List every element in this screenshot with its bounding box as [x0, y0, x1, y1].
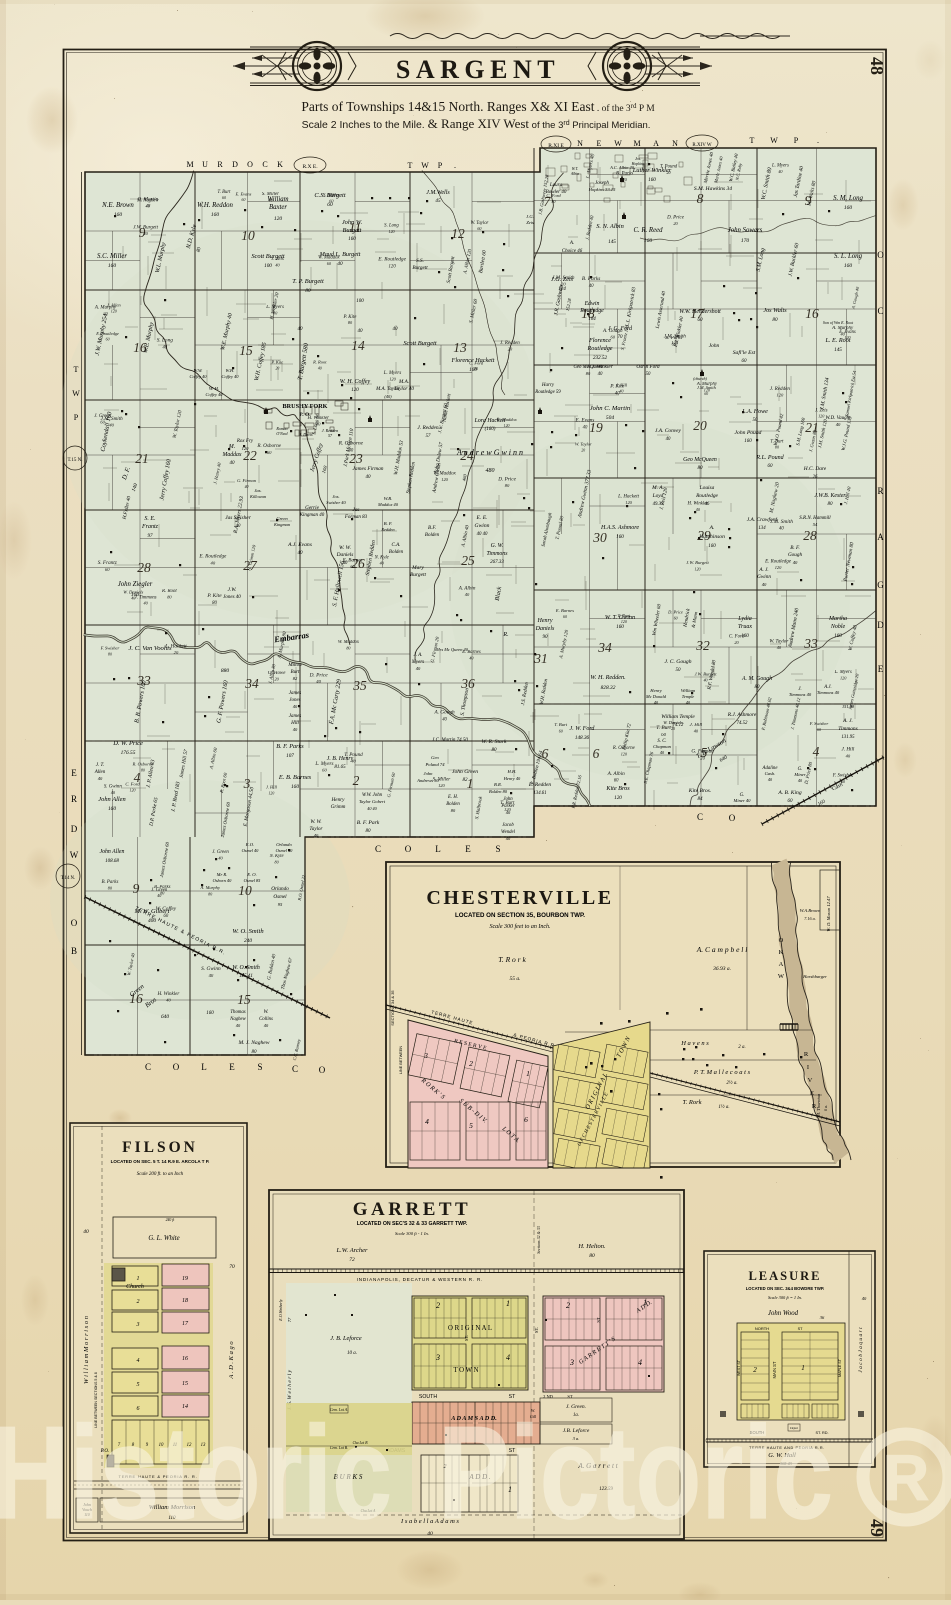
svg-text:60: 60	[817, 728, 821, 732]
svg-text:NORTH: NORTH	[755, 1326, 769, 1331]
svg-text:D. W. Price: D. W. Price	[112, 740, 143, 747]
svg-text:A. J.: A. J.	[758, 567, 768, 573]
svg-text:W.A.Brown: W.A.Brown	[800, 908, 821, 913]
svg-text:267.33: 267.33	[490, 560, 504, 565]
svg-text:80: 80	[772, 317, 778, 323]
svg-text:V: V	[808, 1077, 813, 1084]
svg-text:55 a.: 55 a.	[510, 976, 521, 982]
svg-text:S. Gwinn: S. Gwinn	[201, 966, 221, 972]
svg-text:W. Taylor: W. Taylor	[769, 640, 788, 645]
svg-text:20: 20	[700, 756, 705, 761]
svg-text:J.W. Burgett: J.W. Burgett	[695, 672, 718, 677]
svg-text:60: 60	[768, 464, 774, 469]
svg-text:A.: A.	[709, 525, 715, 531]
svg-text:19: 19	[182, 1276, 188, 1282]
svg-text:120: 120	[388, 229, 395, 234]
svg-text:160: 160	[834, 633, 842, 639]
svg-text:J. T.: J. T.	[96, 763, 105, 768]
svg-text:Miner 40: Miner 40	[733, 798, 752, 803]
svg-text:Osmel 40: Osmel 40	[276, 848, 294, 853]
svg-text:Laura: Laura	[549, 183, 563, 188]
svg-text:Geo: Geo	[431, 755, 439, 760]
svg-text:120: 120	[269, 792, 275, 796]
svg-text:3: 3	[435, 1353, 440, 1362]
svg-text:Scale 200 ft. to an Inch: Scale 200 ft. to an Inch	[137, 1172, 184, 1177]
svg-text:K: K	[277, 160, 283, 169]
svg-text:B.F.: B.F.	[428, 526, 436, 531]
svg-text:A. B. King: A. B. King	[777, 790, 802, 796]
svg-text:40 40: 40 40	[367, 806, 377, 811]
svg-text:Kingman 40: Kingman 40	[299, 513, 325, 518]
svg-text:James Firman: James Firman	[353, 466, 384, 472]
svg-text:S. Miller: S. Miller	[433, 776, 451, 782]
svg-text:John: John	[424, 771, 434, 776]
svg-text:J.M. Smith: J.M. Smith	[552, 275, 575, 281]
svg-text:ST: ST	[798, 1327, 804, 1331]
svg-text:5: 5	[469, 1121, 473, 1130]
svg-text:10 a.: 10 a.	[347, 1351, 357, 1356]
svg-text:MAIN ST: MAIN ST	[772, 1361, 777, 1378]
svg-text:160: 160	[644, 238, 653, 244]
svg-text:2: 2	[353, 773, 360, 788]
svg-text:W. Taylor: W. Taylor	[575, 442, 592, 447]
svg-text:80: 80	[505, 483, 510, 488]
svg-text:J. Hill: J. Hill	[616, 382, 628, 387]
svg-text:C: C	[877, 306, 883, 316]
svg-text:T: T	[750, 136, 755, 145]
svg-text:Jos.: Jos.	[635, 157, 641, 161]
svg-text:Truax: Truax	[738, 624, 752, 630]
svg-text:40: 40	[349, 448, 354, 453]
svg-text:97: 97	[148, 534, 154, 539]
svg-text:T. Burt: T. Burt	[500, 800, 515, 806]
svg-text:Taylor: Taylor	[310, 827, 323, 832]
svg-text:J. W. Ford: J. W. Ford	[570, 726, 596, 732]
svg-text:W. D. Mason 12.47: W. D. Mason 12.47	[826, 896, 831, 932]
svg-text:120: 120	[504, 424, 510, 428]
svg-text:R. Osborne: R. Osborne	[338, 440, 364, 446]
svg-text:49: 49	[867, 1519, 887, 1537]
svg-text:Daniels: Daniels	[336, 552, 354, 558]
svg-text:60: 60	[742, 359, 748, 364]
svg-text:A. J.: A. J.	[842, 718, 853, 724]
svg-text:R: R	[71, 794, 77, 804]
svg-text:160: 160	[708, 544, 716, 549]
svg-text:6: 6	[593, 746, 600, 761]
svg-text:40: 40	[245, 485, 249, 489]
svg-text:R: R	[804, 1051, 809, 1058]
svg-text:Allen: Allen	[94, 770, 106, 775]
svg-text:D: D	[232, 160, 238, 169]
svg-text:50: 50	[646, 372, 651, 377]
svg-text:Gerrie: Gerrie	[305, 505, 320, 511]
svg-text:40: 40	[862, 1296, 867, 1301]
svg-text:100: 100	[356, 299, 364, 304]
svg-text:S. Long: S. Long	[384, 224, 399, 229]
svg-text:80: 80	[141, 767, 145, 772]
svg-text:120: 120	[614, 795, 622, 801]
svg-text:Poland 74: Poland 74	[424, 762, 445, 767]
svg-text:120: 120	[389, 376, 396, 381]
svg-text:20: 20	[561, 282, 566, 287]
svg-text:Mary: Mary	[411, 565, 424, 571]
svg-text:ST: ST	[596, 1317, 601, 1323]
svg-text:60: 60	[222, 195, 226, 200]
svg-text:504: 504	[606, 414, 615, 421]
svg-text:T: T	[408, 161, 413, 170]
svg-text:J.A. Convey: J.A. Convey	[655, 428, 681, 434]
svg-text:W.W. John: W.W. John	[362, 793, 383, 798]
svg-text:20: 20	[671, 727, 675, 731]
svg-text:R.L. Pound: R.L. Pound	[755, 455, 784, 461]
svg-text:B. Parks: B. Parks	[665, 336, 682, 341]
svg-text:35: 35	[352, 678, 367, 693]
svg-text:60: 60	[105, 567, 110, 572]
svg-text:40: 40	[583, 425, 588, 430]
svg-text:F. Swisher: F. Swisher	[100, 646, 120, 651]
svg-text:Louisa: Louisa	[699, 485, 715, 491]
svg-text:S.R.N. Hammill: S.R.N. Hammill	[799, 516, 831, 521]
svg-text:S. Miller: S. Miller	[323, 193, 340, 198]
svg-text:P: P	[74, 413, 79, 422]
svg-text:Bolden 80: Bolden 80	[489, 789, 508, 794]
svg-text:Maddax: Maddax	[222, 452, 242, 458]
svg-text:120: 120	[695, 566, 701, 571]
svg-text:O: O	[729, 813, 736, 823]
svg-text:W. H. Redden.: W. H. Redden.	[590, 674, 625, 681]
svg-text:Timmons: Timmons	[838, 726, 857, 732]
svg-text:120: 120	[625, 500, 632, 505]
svg-text:40: 40	[598, 372, 603, 377]
svg-text:John Sowers: John Sowers	[728, 227, 763, 234]
svg-text:LOCATED ON SEC. 3&4 BOWDRE TW: LOCATED ON SEC. 3&4 BOWDRE TWP.	[746, 1286, 824, 1291]
svg-text:Taylor Gobert: Taylor Gobert	[359, 799, 386, 804]
svg-text:S.S.: S.S.	[416, 258, 424, 264]
svg-text:160: 160	[108, 263, 117, 269]
svg-text:95: 95	[278, 902, 283, 907]
svg-text:H a v e n s: H a v e n s	[680, 1040, 709, 1047]
svg-text:E: E	[810, 1090, 814, 1097]
svg-text:80: 80	[474, 367, 478, 371]
svg-text:P: P	[438, 161, 443, 170]
svg-text:40: 40	[316, 680, 321, 685]
svg-text:E: E	[465, 844, 471, 854]
svg-text:82: 82	[293, 676, 298, 681]
svg-text:U: U	[202, 160, 208, 169]
svg-text:40: 40	[230, 461, 236, 466]
svg-text:H. Thornton: H. Thornton	[816, 1093, 821, 1117]
svg-text:O: O	[405, 844, 412, 854]
svg-text:P. Kite: P. Kite	[206, 593, 222, 599]
svg-text:Bolden: Bolden	[425, 533, 440, 538]
svg-text:40: 40	[469, 655, 473, 660]
svg-text:14: 14	[351, 338, 365, 353]
svg-text:Routledge: Routledge	[695, 493, 718, 499]
svg-text:80: 80	[108, 653, 112, 657]
svg-text:(40): (40)	[384, 394, 392, 399]
svg-text:T.14 N.: T.14 N.	[61, 876, 75, 881]
svg-text:H.C. Dare: H.C. Dare	[803, 466, 827, 472]
svg-text:120: 120	[130, 787, 136, 792]
svg-text:J.M. Smith: J.M. Smith	[101, 416, 123, 422]
svg-text:P: P	[794, 136, 799, 145]
svg-text:36: 36	[820, 1315, 825, 1320]
svg-text:O: O	[173, 1062, 180, 1072]
svg-text:.: .	[454, 161, 456, 170]
svg-text:T. Burt: T. Burt	[656, 725, 671, 731]
svg-text:80: 80	[366, 829, 372, 834]
svg-text:T O W N: T O W N	[453, 1367, 478, 1374]
svg-text:Jones: Jones	[289, 698, 300, 703]
svg-text:40 40: 40 40	[477, 532, 488, 537]
svg-text:L. Myers: L. Myers	[834, 670, 852, 675]
svg-text:1: 1	[137, 1276, 140, 1282]
svg-text:LOCATED ON SEC. 5 T. 14 R.9 E: LOCATED ON SEC. 5 T. 14 R.9 E. ARCOLA T …	[111, 1159, 210, 1164]
svg-text:M: M	[186, 160, 193, 169]
svg-text:N: N	[577, 139, 583, 148]
svg-text:John C. Martin: John C. Martin	[590, 405, 631, 412]
svg-text:Grimm: Grimm	[331, 804, 346, 810]
svg-text:ST.: ST.	[534, 1327, 539, 1333]
svg-text:E: E	[597, 139, 602, 148]
svg-text:W. H. Coffey: W. H. Coffey	[340, 378, 371, 385]
svg-text:B. F. Parks: B. F. Parks	[276, 743, 304, 750]
svg-text:2½ a.: 2½ a.	[726, 1081, 737, 1086]
svg-text:M: M	[633, 139, 640, 148]
svg-text:60: 60	[164, 914, 169, 919]
svg-text:120: 120	[621, 619, 627, 624]
svg-text:L: L	[201, 1062, 207, 1072]
svg-text:W: W	[421, 161, 429, 170]
svg-text:J.C. Martin 74.50: J.C. Martin 74.50	[432, 738, 468, 743]
svg-text:Redden: Redden	[380, 527, 395, 532]
svg-text:70: 70	[229, 1264, 235, 1270]
svg-text:John Green: John Green	[452, 769, 478, 775]
svg-text:145: 145	[608, 238, 616, 245]
svg-text:J. Hill: J. Hill	[841, 747, 854, 753]
svg-text:R. Osborne: R. Osborne	[132, 761, 154, 766]
svg-text:T. P. Burgett: T. P. Burgett	[292, 278, 324, 285]
svg-text:40: 40	[380, 560, 384, 565]
svg-text:LOCATED ON SEC'S 32 & 33 GARRE: LOCATED ON SEC'S 32 & 33 GARRETT TWP.	[357, 1221, 468, 1227]
svg-text:80: 80	[252, 1050, 258, 1055]
svg-text:6: 6	[524, 1115, 528, 1124]
svg-text:105.41: 105.41	[239, 974, 253, 979]
svg-text:40: 40	[846, 753, 851, 758]
svg-text:S.M. Hawkins 34: S.M. Hawkins 34	[694, 186, 732, 192]
svg-text:H. Winkler: H. Winkler	[157, 991, 180, 997]
svg-text:R. Osborne: R. Osborne	[256, 443, 281, 449]
svg-text:Jas.: Jas.	[254, 488, 261, 493]
svg-text:S. L. Long: S. L. Long	[834, 253, 863, 260]
svg-text:S: S	[257, 1062, 262, 1072]
svg-text:80: 80	[275, 859, 279, 864]
svg-text:M. J. Naghew: M. J. Naghew	[237, 1040, 269, 1046]
svg-text:Geo McQueen: Geo McQueen	[683, 457, 717, 463]
svg-text:40: 40	[293, 727, 298, 732]
svg-text:T. R o r k: T. R o r k	[498, 955, 526, 964]
svg-text:160: 160	[844, 205, 853, 211]
svg-text:60: 60	[242, 198, 246, 202]
svg-text:40: 40	[298, 327, 304, 332]
svg-text:E. Barnes: E. Barnes	[342, 559, 363, 564]
svg-text:20: 20	[174, 650, 179, 655]
svg-text:Myers: Myers	[411, 660, 425, 665]
svg-text:S. E.: S. E.	[144, 516, 155, 522]
svg-text:SARGENT: SARGENT	[396, 55, 560, 84]
svg-text:60: 60	[322, 768, 327, 773]
svg-text:R. Root: R. Root	[161, 589, 177, 594]
svg-text:W.B.: W.B.	[384, 496, 393, 501]
svg-text:Scale 300 feet to an Inch.: Scale 300 feet to an Inch.	[490, 923, 551, 930]
svg-text:Timmons 40: Timmons 40	[789, 692, 812, 697]
svg-text:G. Firman: G. Firman	[691, 749, 714, 755]
svg-text:240: 240	[244, 938, 252, 944]
svg-text:L: L	[435, 844, 441, 854]
svg-text:H. Helton.: H. Helton.	[577, 1243, 606, 1250]
svg-text:20: 20	[693, 418, 707, 433]
svg-text:W: W	[614, 139, 622, 148]
svg-text:134.61: 134.61	[533, 791, 546, 796]
svg-text:R.X E.: R.X E.	[302, 164, 318, 170]
svg-text:120: 120	[242, 446, 250, 451]
svg-text:170: 170	[741, 238, 750, 244]
svg-text:W. Maddox: W. Maddox	[496, 417, 516, 422]
svg-text:J. Redden: J. Redden	[417, 425, 439, 431]
svg-text:151.98: 151.98	[842, 704, 855, 709]
svg-text:Church: Church	[126, 1284, 144, 1290]
svg-text:40: 40	[298, 551, 304, 556]
svg-text:Hopkins 33.15: Hopkins 33.15	[588, 187, 616, 192]
svg-text:40: 40	[393, 327, 399, 332]
svg-text:S. N. Albin: S. N. Albin	[596, 223, 624, 230]
svg-text:H. Winkler: H. Winkler	[687, 502, 709, 507]
svg-text:4: 4	[813, 744, 820, 759]
svg-text:120: 120	[775, 565, 782, 570]
svg-text:R.: R.	[502, 632, 508, 638]
svg-text:40: 40	[166, 997, 171, 1002]
svg-text:W. O. Smith: W. O. Smith	[232, 928, 264, 935]
svg-text:J.G.: J.G.	[526, 214, 534, 219]
svg-text:T. Pound: T. Pound	[660, 165, 678, 170]
svg-text:400: 400	[148, 918, 156, 924]
svg-text:Osmel 40: Osmel 40	[242, 848, 260, 853]
svg-text:O: O	[319, 1065, 326, 1075]
svg-text:J. Timmons: J. Timmons	[135, 595, 157, 600]
svg-text:108.68: 108.68	[105, 859, 119, 864]
svg-text:40: 40	[620, 389, 624, 393]
svg-text:E. E.: E. E.	[475, 515, 487, 521]
svg-text:40: 40	[109, 422, 114, 427]
svg-text:James: James	[289, 714, 302, 719]
svg-text:N.E. Brown: N.E. Brown	[101, 202, 134, 209]
svg-text:40: 40	[442, 717, 447, 722]
svg-text:J.M. Smith: J.M. Smith	[770, 519, 793, 525]
svg-text:120: 120	[704, 387, 710, 392]
svg-text:S. Gwinn: S. Gwinn	[104, 785, 122, 790]
svg-text:80: 80	[212, 601, 217, 606]
svg-text:640: 640	[161, 1014, 169, 1020]
svg-text:Baxter: Baxter	[269, 204, 287, 211]
svg-text:L. Hackett: L. Hackett	[164, 644, 187, 650]
svg-text:J. B. Leforce: J. B. Leforce	[330, 1335, 362, 1342]
svg-text:4: 4	[425, 1117, 429, 1126]
svg-text:Jos.: Jos.	[332, 494, 339, 499]
svg-text:Jacob: Jacob	[502, 823, 514, 828]
svg-text:34: 34	[244, 676, 259, 691]
svg-text:G: G	[877, 580, 884, 590]
svg-text:60: 60	[704, 392, 708, 396]
svg-text:60: 60	[106, 338, 110, 342]
svg-text:F. Swisher: F. Swisher	[832, 774, 853, 779]
svg-text:Kite Bros.: Kite Bros.	[688, 788, 711, 794]
svg-text:J. Hill: J. Hill	[266, 785, 278, 790]
svg-text:P. Kite: P. Kite	[342, 315, 357, 320]
svg-text:C: C	[145, 1062, 151, 1072]
svg-text:W. Coffey: W. Coffey	[156, 905, 177, 912]
svg-text:L. Hackett: L. Hackett	[617, 494, 639, 499]
svg-text:O: O	[779, 937, 784, 944]
svg-text:Routledge: Routledge	[579, 308, 604, 314]
svg-text:G. Firman: G. Firman	[237, 478, 257, 483]
svg-text:232.52: 232.52	[593, 355, 608, 361]
svg-text:40: 40	[351, 758, 356, 763]
svg-text:80: 80	[589, 1253, 595, 1259]
svg-text:160: 160	[616, 534, 624, 540]
svg-text:Gough: Gough	[788, 552, 803, 558]
svg-text:John Ziegler: John Ziegler	[118, 581, 153, 588]
svg-text:B. Parks: B. Parks	[101, 880, 118, 885]
svg-text:80: 80	[698, 466, 704, 471]
svg-text:120: 120	[776, 393, 784, 398]
svg-text:S: S	[495, 844, 500, 854]
svg-text:40: 40	[143, 231, 148, 236]
svg-text:18: 18	[182, 1298, 188, 1304]
svg-text:10: 10	[241, 228, 255, 243]
svg-text:John Pound: John Pound	[735, 430, 762, 436]
svg-text:60: 60	[611, 334, 616, 339]
svg-text:Orlando: Orlando	[276, 842, 292, 847]
svg-text:40: 40	[793, 560, 798, 565]
svg-text:Henry: Henry	[537, 618, 553, 624]
svg-text:C: C	[262, 160, 267, 169]
svg-text:H.H.: H.H.	[507, 769, 517, 774]
svg-text:N: N	[672, 139, 678, 148]
svg-text:3: 3	[423, 1051, 428, 1060]
svg-text:Coffey 40: Coffey 40	[222, 374, 240, 379]
svg-text:Burgett: Burgett	[343, 227, 362, 234]
svg-text:10: 10	[238, 883, 252, 898]
svg-text:E. O.: E. O.	[246, 872, 257, 877]
svg-text:S. M. Long: S. M. Long	[833, 195, 863, 202]
svg-text:148.36: 148.36	[575, 734, 590, 741]
svg-text:80: 80	[828, 502, 834, 507]
svg-text:MAPLE ST: MAPLE ST	[838, 1358, 842, 1377]
svg-text:120: 120	[438, 783, 445, 788]
svg-text:3: 3	[569, 1358, 574, 1367]
svg-text:R: R	[877, 486, 883, 496]
svg-text:.: .	[817, 136, 819, 145]
svg-text:40: 40	[465, 592, 470, 597]
svg-text:J. A.: J. A.	[414, 653, 423, 658]
svg-text:B: B	[71, 946, 77, 956]
svg-text:120: 120	[504, 807, 512, 812]
svg-text:160: 160	[844, 263, 853, 269]
svg-text:2: 2	[753, 1366, 757, 1374]
svg-text:Gwinn: Gwinn	[475, 523, 490, 529]
svg-text:INDIANAPOLIS, DECATUR &: INDIANAPOLIS, DECATUR & WESTERN R. R.	[357, 1277, 484, 1282]
svg-text:176.55: 176.55	[121, 750, 136, 756]
